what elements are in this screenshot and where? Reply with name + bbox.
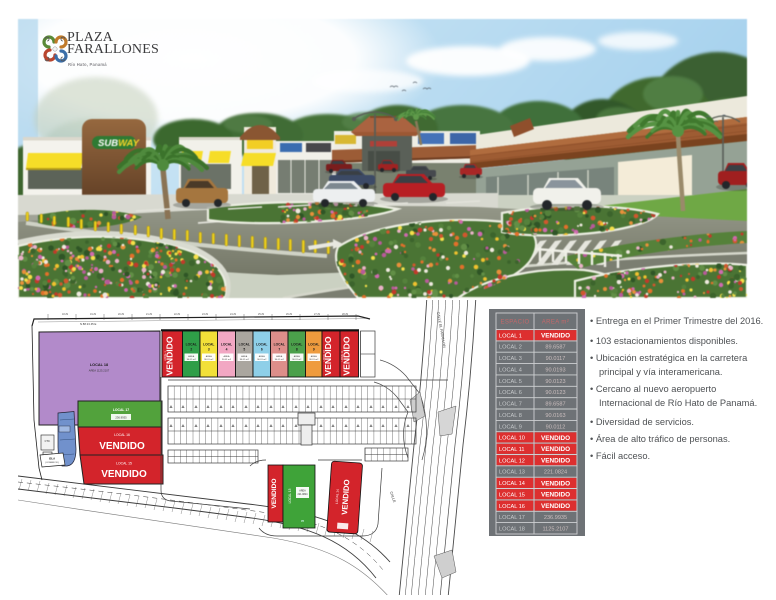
svg-text:19.29: 19.29 — [90, 313, 97, 316]
svg-text:VENDIDO: VENDIDO — [541, 458, 570, 465]
svg-text:AREA 1125.2107: AREA 1125.2107 — [89, 369, 110, 373]
svg-text:90.0117: 90.0117 — [546, 356, 566, 362]
svg-text:AREA: AREA — [241, 355, 247, 358]
svg-text:2: 2 — [190, 348, 192, 352]
svg-text:VENDIDO: VENDIDO — [271, 478, 278, 508]
svg-text:LOCAL 8: LOCAL 8 — [499, 413, 522, 419]
svg-text:LOCAL 1: LOCAL 1 — [499, 333, 522, 339]
svg-text:221.0824: 221.0824 — [298, 493, 309, 496]
svg-text:LOCAL 9: LOCAL 9 — [499, 424, 522, 430]
svg-text:AREA m²: AREA m² — [542, 319, 569, 325]
svg-text:LOCAL 16: LOCAL 16 — [114, 433, 130, 437]
svg-text:LOCAL: LOCAL — [256, 343, 267, 347]
svg-text:236.9935: 236.9935 — [544, 515, 567, 521]
svg-text:24.29: 24.29 — [230, 313, 237, 316]
svg-text:LOCAL 18: LOCAL 18 — [90, 363, 108, 367]
svg-text:LOCAL 15: LOCAL 15 — [499, 492, 525, 498]
svg-text:LOCAL: LOCAL — [221, 343, 232, 347]
svg-text:90.0112: 90.0112 — [546, 424, 566, 430]
svg-text:AREA: AREA — [224, 355, 230, 358]
svg-text:90.0123: 90.0123 — [545, 390, 565, 396]
svg-text:LOCAL 7: LOCAL 7 — [499, 402, 522, 408]
svg-text:8: 8 — [296, 348, 298, 352]
svg-text:90.0163: 90.0163 — [545, 413, 565, 419]
svg-text:90.01 m2: 90.01 m2 — [292, 359, 302, 361]
svg-text:89.6587: 89.6587 — [545, 402, 565, 408]
svg-text:LOCAL 6: LOCAL 6 — [499, 390, 522, 396]
svg-text:90.0123: 90.0123 — [545, 379, 565, 385]
svg-text:3: 3 — [208, 348, 210, 352]
svg-text:CTO.: CTO. — [45, 440, 51, 443]
svg-text:28.29: 28.29 — [342, 313, 349, 316]
svg-text:(COMERCIO): (COMERCIO) — [45, 462, 59, 464]
svg-text:21.29: 21.29 — [146, 313, 153, 316]
svg-text:7: 7 — [278, 348, 280, 352]
svg-text:ESPACIO: ESPACIO — [500, 319, 529, 325]
svg-text:LOCAL 4: LOCAL 4 — [499, 368, 522, 374]
svg-text:90.01 m2: 90.01 m2 — [275, 359, 285, 361]
svg-text:5: 5 — [243, 348, 245, 352]
svg-text:LOCAL 16: LOCAL 16 — [499, 504, 525, 510]
svg-text:236.9935: 236.9935 — [115, 416, 127, 420]
svg-text:LOCAL: LOCAL — [308, 343, 319, 347]
svg-text:AREA: AREA — [276, 355, 282, 358]
svg-text:20.29: 20.29 — [118, 313, 125, 316]
svg-text:90.01 m2: 90.01 m2 — [309, 359, 319, 361]
svg-text:90.01 m2: 90.01 m2 — [257, 359, 267, 361]
svg-text:90.01 m2: 90.01 m2 — [187, 359, 197, 361]
svg-text:LOCAL 17: LOCAL 17 — [499, 515, 525, 521]
svg-text:LOCAL 11: LOCAL 11 — [341, 350, 344, 362]
svg-text:LOCAL 1: LOCAL 1 — [164, 350, 167, 360]
svg-text:6: 6 — [261, 348, 263, 352]
svg-text:AREA: AREA — [188, 355, 194, 358]
svg-text:LOCAL: LOCAL — [203, 343, 214, 347]
svg-text:ISLA: ISLA — [49, 457, 55, 461]
svg-text:26.29: 26.29 — [286, 313, 293, 316]
svg-text:90.0193: 90.0193 — [545, 368, 565, 374]
svg-text:LOCAL 10: LOCAL 10 — [323, 350, 326, 362]
svg-text:VENDIDO: VENDIDO — [99, 441, 145, 452]
svg-text:AREA: AREA — [259, 355, 265, 358]
svg-text:1125.2107: 1125.2107 — [542, 527, 568, 533]
svg-text:4: 4 — [226, 348, 228, 352]
svg-text:18.29: 18.29 — [62, 313, 69, 316]
svg-text:89.6587: 89.6587 — [545, 345, 565, 351]
svg-text:AREA: AREA — [311, 355, 317, 358]
svg-text:90.01 m2: 90.01 m2 — [240, 359, 250, 361]
svg-text:VENDIDO: VENDIDO — [541, 480, 570, 487]
svg-text:LOCAL 14: LOCAL 14 — [499, 481, 525, 487]
svg-text:9: 9 — [313, 348, 315, 352]
svg-text:VENDIDO: VENDIDO — [541, 503, 570, 510]
svg-text:LOCAL: LOCAL — [274, 343, 285, 347]
svg-text:LOCAL: LOCAL — [291, 343, 302, 347]
svg-text:LOCAL 17: LOCAL 17 — [113, 408, 129, 412]
svg-text:AREA: AREA — [206, 355, 212, 358]
svg-text:VENDIDO: VENDIDO — [541, 435, 570, 442]
svg-text:LOCAL 13: LOCAL 13 — [288, 488, 292, 503]
svg-text:LOCAL 10: LOCAL 10 — [499, 436, 525, 442]
svg-text:27.29: 27.29 — [314, 313, 321, 316]
svg-text:23.29: 23.29 — [202, 313, 209, 316]
svg-text:LOCAL 15: LOCAL 15 — [116, 462, 132, 466]
svg-text:VENDIDO: VENDIDO — [541, 492, 570, 499]
svg-text:SUBWAY: SUBWAY — [98, 138, 141, 149]
svg-text:LOCAL 3: LOCAL 3 — [499, 356, 522, 362]
svg-text:VENDIDO: VENDIDO — [541, 333, 570, 340]
svg-text:PB: PB — [301, 520, 305, 523]
svg-text:LOCAL: LOCAL — [186, 343, 197, 347]
svg-text:AREA: AREA — [294, 355, 300, 358]
svg-text:90.01 m2: 90.01 m2 — [204, 359, 214, 361]
svg-text:VENDIDO: VENDIDO — [101, 469, 147, 480]
svg-text:LOCAL 5: LOCAL 5 — [499, 379, 522, 385]
svg-text:N 88 23 45 E: N 88 23 45 E — [80, 322, 96, 326]
svg-text:LOCAL 11: LOCAL 11 — [499, 447, 525, 453]
svg-text:90.01 m2: 90.01 m2 — [222, 359, 232, 361]
svg-text:221.0824: 221.0824 — [544, 470, 567, 476]
svg-text:LOCAL 13: LOCAL 13 — [499, 470, 525, 476]
svg-text:25.29: 25.29 — [258, 313, 265, 316]
svg-text:LOCAL: LOCAL — [239, 343, 250, 347]
svg-text:LOCAL 12: LOCAL 12 — [499, 458, 525, 464]
svg-text:22.29: 22.29 — [174, 313, 181, 316]
svg-text:VENDIDO: VENDIDO — [541, 446, 570, 453]
svg-text:LOCAL 2: LOCAL 2 — [499, 345, 522, 351]
svg-text:LOCAL 18: LOCAL 18 — [499, 527, 525, 533]
